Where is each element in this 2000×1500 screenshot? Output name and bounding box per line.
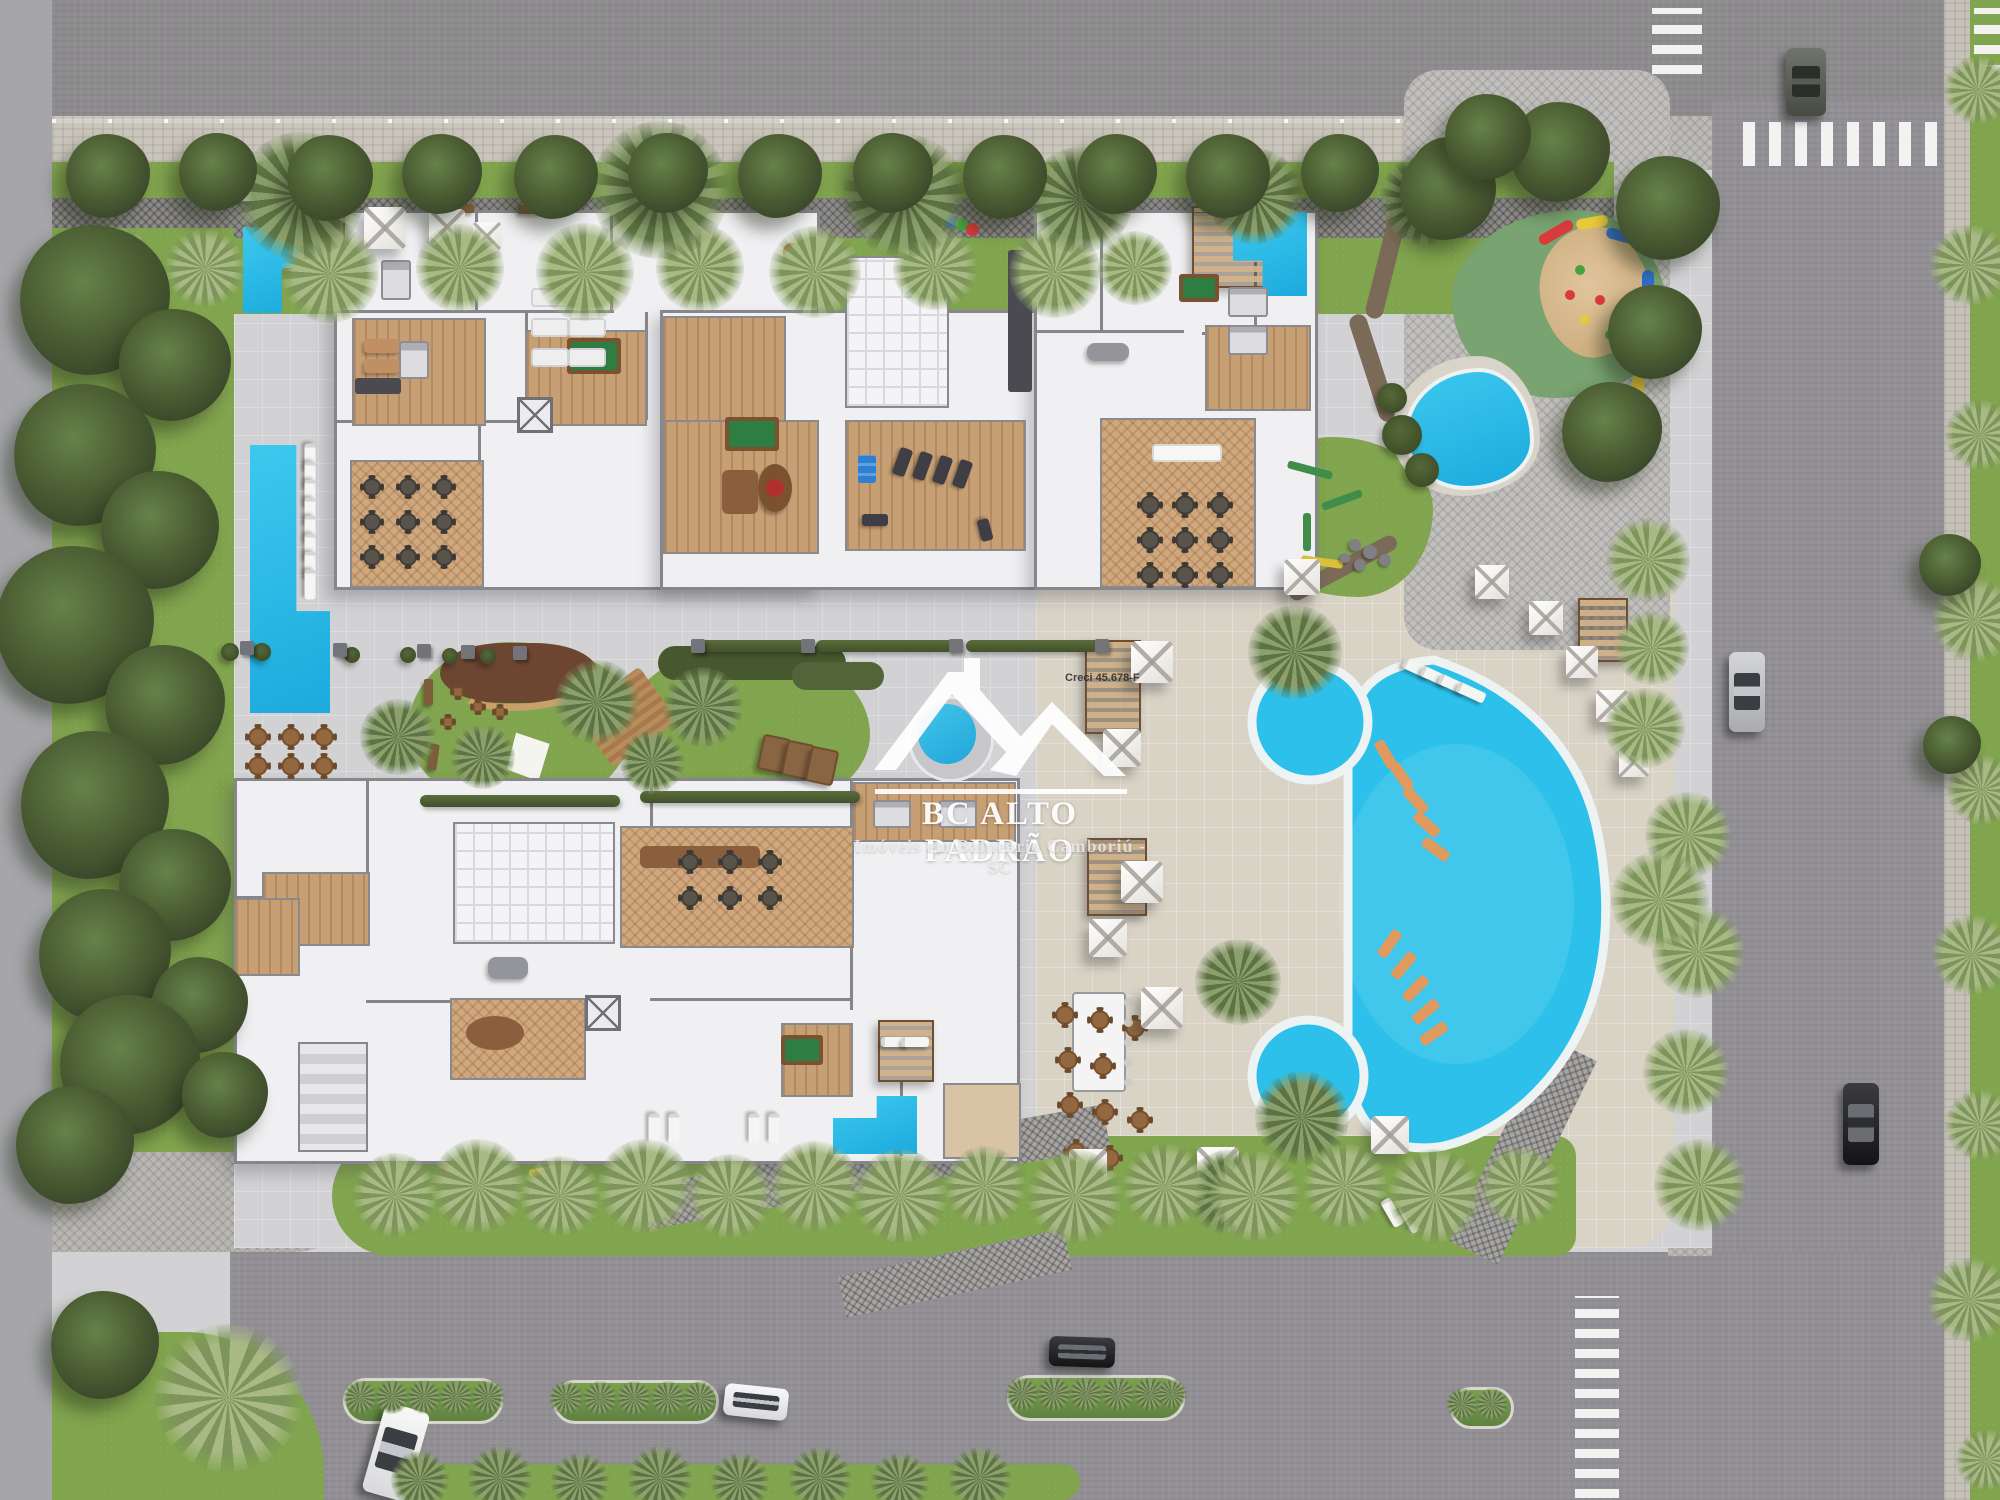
palm-dark — [451, 725, 515, 789]
table-set — [311, 724, 337, 750]
bench — [424, 679, 433, 705]
stool — [1124, 1078, 1133, 1087]
table-dark — [432, 510, 456, 534]
palm-light — [520, 1156, 600, 1236]
table-set — [311, 753, 337, 779]
palm-dark — [789, 1447, 851, 1500]
site-plan-scene: Creci 45.678-F BC ALTO PADRÃO Imóveis em… — [0, 0, 2000, 1500]
stool — [1124, 1018, 1133, 1027]
sofa-white — [568, 348, 606, 367]
table-dark — [432, 545, 456, 569]
palm-light — [154, 1324, 302, 1472]
palm-dark — [583, 1381, 617, 1415]
palm-light — [770, 1141, 860, 1231]
umbrella — [1141, 987, 1183, 1029]
palm-dark — [1248, 605, 1342, 699]
tree — [51, 1291, 159, 1399]
palm-light — [1615, 611, 1689, 685]
palm-light — [1932, 915, 2000, 995]
car-black — [1048, 1336, 1115, 1368]
tree — [402, 134, 482, 214]
table-dark — [678, 886, 702, 910]
shrub — [442, 648, 458, 664]
palm-light — [1654, 1139, 1746, 1231]
bean — [1354, 559, 1366, 571]
tree — [1077, 134, 1157, 214]
van-dark — [1786, 48, 1826, 116]
palm-light — [1944, 56, 2000, 124]
lounger-white — [1455, 681, 1487, 704]
table-dark — [1172, 527, 1198, 553]
gym-dark — [891, 447, 913, 478]
table-set — [1052, 1002, 1078, 1028]
table-dark — [678, 850, 702, 874]
gym-dark — [931, 455, 953, 486]
palm-dark — [1101, 1377, 1135, 1411]
palm-dark — [549, 1381, 583, 1415]
palm-light — [1928, 1258, 2000, 1342]
table-set — [470, 699, 486, 715]
lounger-white — [901, 1037, 929, 1047]
table-dark — [1137, 562, 1163, 588]
post — [461, 645, 475, 659]
shrub — [1405, 453, 1439, 487]
umbrella — [1529, 601, 1563, 635]
stool — [1124, 1058, 1133, 1067]
gym-dark — [951, 459, 973, 490]
palm-dark — [620, 730, 684, 794]
table-set — [278, 753, 304, 779]
gym-dark — [862, 514, 888, 526]
shrub — [221, 643, 239, 661]
post — [513, 646, 527, 660]
hedge — [698, 640, 806, 652]
palm-dark — [871, 1453, 929, 1500]
car-silver — [1729, 652, 1765, 732]
table-set — [1055, 1047, 1081, 1073]
car-black — [1843, 1083, 1879, 1165]
palm-light — [1028, 1149, 1122, 1243]
bean — [1379, 554, 1391, 566]
seg-yellow — [1575, 214, 1608, 230]
palm-light — [1930, 225, 2000, 305]
palm-dark — [471, 1380, 505, 1414]
bean — [1340, 553, 1350, 563]
table-dark — [1137, 527, 1163, 553]
table-dark — [718, 850, 742, 874]
palm-dark — [555, 660, 639, 744]
lounger-white — [749, 1113, 760, 1143]
dot-red — [1595, 295, 1605, 305]
table-dark — [360, 475, 384, 499]
table-set — [1127, 1107, 1153, 1133]
table-dark — [1172, 492, 1198, 518]
tree — [66, 134, 150, 218]
palm-dark — [360, 699, 436, 775]
palm-light — [853, 1149, 947, 1243]
palm-light — [688, 1154, 772, 1238]
palm-dark — [1005, 1377, 1039, 1411]
gym-dark — [976, 518, 993, 542]
table-dark — [396, 545, 420, 569]
palm-dark — [711, 1453, 769, 1500]
table-dark — [1207, 527, 1233, 553]
table-set — [1087, 1007, 1113, 1033]
shrub — [400, 647, 416, 663]
shrub — [1377, 383, 1407, 413]
table-dark — [718, 886, 742, 910]
sofa-white — [531, 318, 569, 337]
watermark-rule — [875, 789, 1127, 794]
frame-green — [1303, 513, 1311, 551]
palm-light — [431, 1139, 525, 1233]
table-set — [492, 704, 508, 720]
palm-light — [353, 1153, 437, 1237]
tree — [1608, 285, 1702, 379]
car-white — [723, 1383, 790, 1422]
palm-dark — [949, 1447, 1011, 1500]
sofa-gray — [1087, 343, 1129, 361]
palm-dark — [683, 1381, 717, 1415]
palm-light — [1606, 518, 1690, 602]
dot-green — [1575, 265, 1585, 275]
palm-light — [1643, 1029, 1729, 1115]
frame-green — [1321, 489, 1363, 511]
palm-dark — [375, 1380, 409, 1414]
table-set — [278, 724, 304, 750]
tree — [738, 134, 822, 218]
table-set — [1092, 1099, 1118, 1125]
tree — [514, 135, 598, 219]
tree — [1616, 156, 1720, 260]
palm-dark — [1446, 1388, 1478, 1420]
house-roofs-icon — [872, 652, 1128, 778]
palm-dark — [1476, 1388, 1508, 1420]
table-dark — [360, 510, 384, 534]
shrub — [480, 648, 496, 664]
shrub — [1382, 415, 1422, 455]
palm-dark — [391, 1451, 449, 1500]
umbrella — [1089, 919, 1127, 957]
palm-dark — [1157, 1379, 1187, 1409]
dot-red — [1565, 290, 1575, 300]
table-set — [245, 724, 271, 750]
palm-dark — [628, 1446, 692, 1500]
table-dark — [396, 475, 420, 499]
palm-light — [1303, 1144, 1387, 1228]
umbrella — [1284, 559, 1320, 595]
dot-yellow — [1580, 315, 1590, 325]
table-set — [1090, 1053, 1116, 1079]
palm-dark — [468, 1446, 532, 1500]
post — [691, 639, 705, 653]
post — [240, 641, 254, 655]
post — [801, 639, 815, 653]
palm-dark — [551, 1453, 609, 1500]
table-dark — [1172, 562, 1198, 588]
umbrella — [1566, 646, 1598, 678]
palm-light — [598, 1139, 692, 1233]
dot-red — [966, 223, 979, 236]
palm-light — [1210, 1151, 1300, 1241]
table-dark — [1137, 492, 1163, 518]
table-set — [1057, 1092, 1083, 1118]
palm-light — [1388, 1149, 1482, 1243]
stool — [1124, 998, 1133, 1007]
table-set — [450, 684, 466, 700]
palm-dark — [651, 1381, 685, 1415]
sofa-gray — [488, 957, 528, 979]
bean — [1349, 539, 1361, 551]
shrub — [253, 643, 271, 661]
palm-light — [1480, 1146, 1560, 1226]
table-dark — [1207, 492, 1233, 518]
palm-dark — [343, 1380, 377, 1414]
core — [517, 397, 553, 433]
bed — [399, 341, 429, 379]
palm-light — [166, 229, 244, 307]
bean — [1363, 545, 1377, 559]
gym-dark — [911, 451, 933, 482]
palm-light — [1611, 851, 1709, 949]
table-set — [440, 714, 456, 730]
table-dark — [758, 886, 782, 910]
watermark: Creci 45.678-F BC ALTO PADRÃO Imóveis em… — [820, 640, 1240, 880]
bed — [1228, 325, 1268, 355]
palm-light — [769, 226, 861, 318]
tree — [1301, 134, 1379, 212]
table-dark — [360, 545, 384, 569]
palm-light — [1605, 688, 1685, 768]
palm-light — [1956, 1430, 2000, 1490]
palm-dark — [1195, 939, 1281, 1025]
sofa-white — [531, 348, 569, 367]
palm-dark — [1037, 1377, 1071, 1411]
bed — [1228, 287, 1268, 317]
palm-dark — [617, 1381, 651, 1415]
table-dark — [1207, 562, 1233, 588]
tree — [1562, 382, 1662, 482]
umbrella — [1371, 1116, 1409, 1154]
tree — [182, 1052, 268, 1138]
palm-dark — [663, 667, 743, 747]
lounger-white — [669, 1113, 680, 1143]
palm-light — [1945, 1090, 2000, 1160]
palm-light — [416, 224, 504, 312]
seg-red — [1537, 218, 1575, 247]
palm-light — [945, 1146, 1025, 1226]
palm-dark — [407, 1380, 441, 1414]
table-dark — [396, 510, 420, 534]
palm-light — [1945, 400, 2000, 470]
frame-green — [1287, 460, 1334, 480]
palm-dark — [1069, 1377, 1103, 1411]
bed — [381, 260, 411, 300]
lounger-white — [769, 1113, 780, 1143]
umbrella — [364, 207, 406, 249]
core — [585, 995, 621, 1031]
umbrella — [1475, 565, 1509, 599]
post — [417, 644, 431, 658]
table-dark — [758, 850, 782, 874]
table-set — [245, 753, 271, 779]
tree — [16, 1086, 134, 1204]
table-dark — [432, 475, 456, 499]
lounger-white — [305, 569, 316, 599]
stool — [1124, 1038, 1133, 1047]
palm-light — [1123, 1144, 1207, 1228]
sofa-tan — [364, 359, 400, 373]
palm-dark — [439, 1380, 473, 1414]
post — [333, 643, 347, 657]
hedge — [420, 795, 620, 807]
watermark-tagline: Imóveis em Balneário Camboriú - SC — [850, 836, 1150, 878]
sofa-tan — [364, 339, 400, 353]
